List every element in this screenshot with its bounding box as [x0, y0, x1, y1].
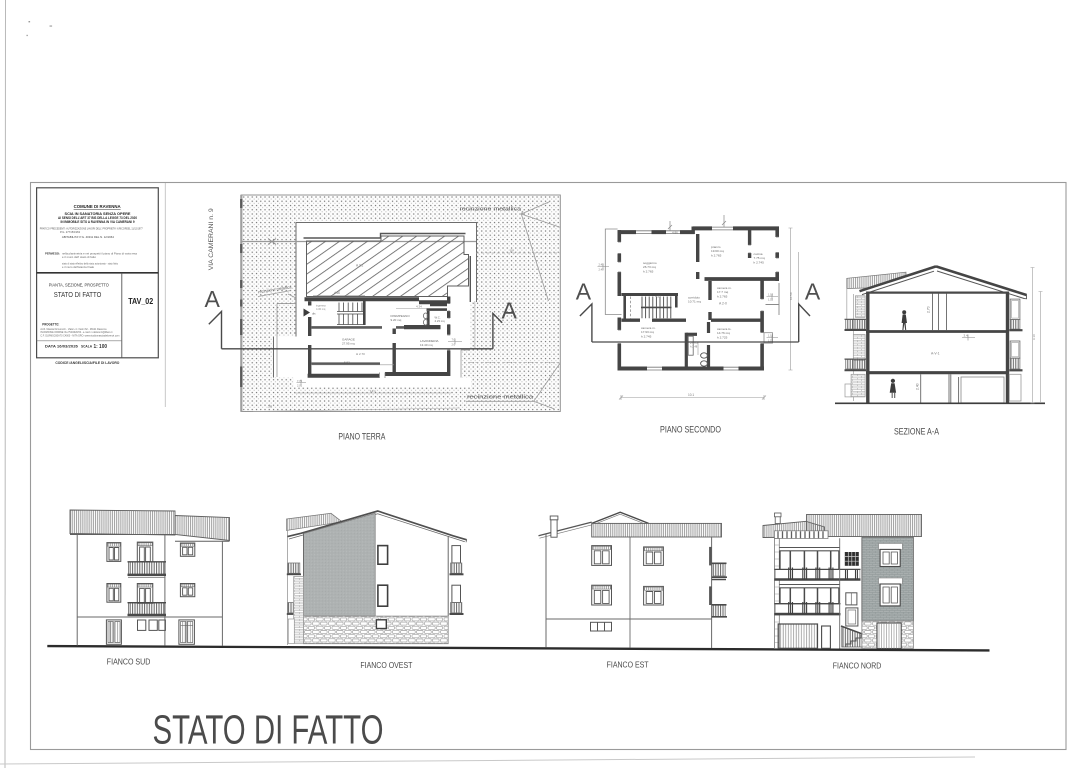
svg-text:1: 100: 1: 100 — [94, 344, 108, 350]
svg-text:4.50: 4.50 — [334, 291, 340, 295]
svg-text:PROGETTO:: PROGETTO: — [42, 322, 59, 326]
svg-text:h 2.745: h 2.745 — [641, 334, 652, 338]
svg-text:A: A — [805, 279, 821, 305]
svg-text:5A: 5A — [268, 405, 273, 409]
svg-text:FIANCO EST: FIANCO EST — [607, 661, 649, 670]
svg-text:SEZIONE A-A: SEZIONE A-A — [894, 427, 939, 437]
svg-text:10.50: 10.50 — [789, 292, 793, 300]
svg-text:9.20 mq: 9.20 mq — [391, 318, 402, 322]
svg-text:e il muro dell' stato di fatto: e il muro dell' stato di fatto — [62, 255, 97, 259]
svg-text:A 2-0: A 2-0 — [719, 302, 727, 306]
svg-text:13.40 mq: 13.40 mq — [420, 343, 433, 347]
svg-text:PIANO SECONDO: PIANO SECONDO — [660, 425, 721, 435]
svg-text:ISCRIZIONE ORDINE: Ra 754/2020: ISCRIZIONE ORDINE: Ra 754/2020/33 - e-ma… — [40, 330, 112, 334]
svg-text:10.71 mq: 10.71 mq — [688, 300, 701, 304]
svg-text:FIANCO OVEST: FIANCO OVEST — [360, 661, 412, 670]
svg-text:1.52: 1.52 — [768, 297, 774, 301]
svg-text:recinzione metallica: recinzione metallica — [467, 395, 534, 401]
svg-text:A: A — [576, 279, 592, 305]
svg-text:TAV_02: TAV_02 — [128, 297, 153, 306]
svg-text:A-V-1: A-V-1 — [931, 352, 940, 356]
svg-text:4.23 mq: 4.23 mq — [435, 319, 446, 323]
svg-text:C.F. DLRMSC60A70 C4000 - NITA: C.F. DLRMSC60A70 C4000 - NITA SRO: www.s… — [40, 334, 119, 338]
svg-text:27.95 mq: 27.95 mq — [342, 342, 355, 346]
svg-text:PIANO TERRA: PIANO TERRA — [338, 431, 385, 441]
svg-text:1.13: 1.13 — [768, 334, 774, 338]
svg-text:4.52: 4.52 — [655, 295, 661, 299]
svg-text:A 3.1: A 3.1 — [356, 264, 363, 268]
svg-text:recinzione metallica: recinzione metallica — [460, 207, 523, 213]
svg-text:2.45: 2.45 — [599, 263, 605, 267]
svg-text:SCALA: SCALA — [81, 344, 93, 348]
svg-text:VIA CAMERANI n. 9: VIA CAMERANI n. 9 — [208, 208, 215, 271]
svg-text:A: A — [205, 286, 221, 312]
svg-text:PERMESSI:: PERMESSI: — [45, 252, 60, 256]
svg-text:4.34: 4.34 — [416, 304, 422, 308]
svg-text:PRATICO PRECEDENTI: AUTORIZZAZ: PRATICO PRECEDENTI: AUTORIZZAZIONE LAVOR… — [40, 227, 143, 231]
svg-text:h 2.745: h 2.745 — [754, 260, 765, 264]
svg-text:dis: dis — [312, 312, 316, 316]
svg-text:2.70: 2.70 — [927, 306, 931, 313]
svg-text:14.1: 14.1 — [370, 389, 376, 393]
svg-text:H 2.70: H 2.70 — [356, 352, 365, 356]
svg-text:2.40: 2.40 — [599, 267, 605, 271]
svg-text:4.86: 4.86 — [672, 231, 678, 235]
svg-text:h 2.48: h 2.48 — [690, 344, 698, 348]
svg-text:1.10: 1.10 — [768, 293, 774, 297]
svg-text:2.40: 2.40 — [916, 383, 920, 390]
svg-text:9.10: 9.10 — [1032, 334, 1036, 340]
svg-text:ABITABILITA' P.G. 40311 DEL N.: ABITABILITA' P.G. 40311 DEL N. 12/1964 — [62, 235, 114, 239]
svg-text:h 2.725: h 2.725 — [717, 335, 728, 339]
svg-text:pv: pv — [510, 249, 514, 253]
svg-text:A: A — [502, 298, 518, 324]
svg-text:2.0: 2.0 — [452, 342, 456, 346]
svg-text:h 2.765: h 2.765 — [643, 269, 654, 273]
svg-text:h 2.765: h 2.765 — [711, 253, 722, 257]
svg-text:FIANCO SUD: FIANCO SUD — [107, 658, 151, 667]
svg-text:P.G. 27715/1963: P.G. 27715/1963 — [60, 230, 80, 234]
svg-text:3.4: 3.4 — [964, 334, 969, 338]
svg-text:h 2.765: h 2.765 — [717, 294, 728, 298]
svg-text:DATA 16/03/2026: DATA 16/03/2026 — [45, 344, 78, 348]
svg-text:7.0: 7.0 — [452, 338, 456, 342]
svg-text:STATO DI FATTO: STATO DI FATTO — [54, 290, 102, 299]
svg-text:CODICE /ANGELI/SCIA/FILE DI LA: CODICE /ANGELI/SCIA/FILE DI LAVORO — [55, 361, 119, 365]
svg-text:4.30 mq: 4.30 mq — [316, 307, 326, 311]
svg-text:FIANCO NORD: FIANCO NORD — [833, 662, 882, 671]
svg-text:7.70: 7.70 — [297, 379, 303, 383]
svg-text:STATO DI FATTO: STATO DI FATTO — [153, 707, 384, 753]
svg-text:IN IMMOBILE SITO A RAVENNA IN: IN IMMOBILE SITO A RAVENNA IN VIA CAMERA… — [61, 220, 135, 224]
svg-text:2.01: 2.01 — [297, 383, 303, 387]
svg-text:PIANTA, SEZIONE, PROSPETTO: PIANTA, SEZIONE, PROSPETTO — [49, 283, 109, 288]
svg-text:10.1: 10.1 — [688, 393, 694, 397]
svg-text:Arch. Mascia De'Lorenzi - Vial: Arch. Mascia De'Lorenzi - Viale L.C. Far… — [40, 327, 107, 331]
svg-text:COMUNE DI RAVENNA: COMUNE DI RAVENNA — [74, 204, 122, 209]
svg-text:e il muro dell'istanza finale: e il muro dell'istanza finale — [62, 265, 95, 269]
